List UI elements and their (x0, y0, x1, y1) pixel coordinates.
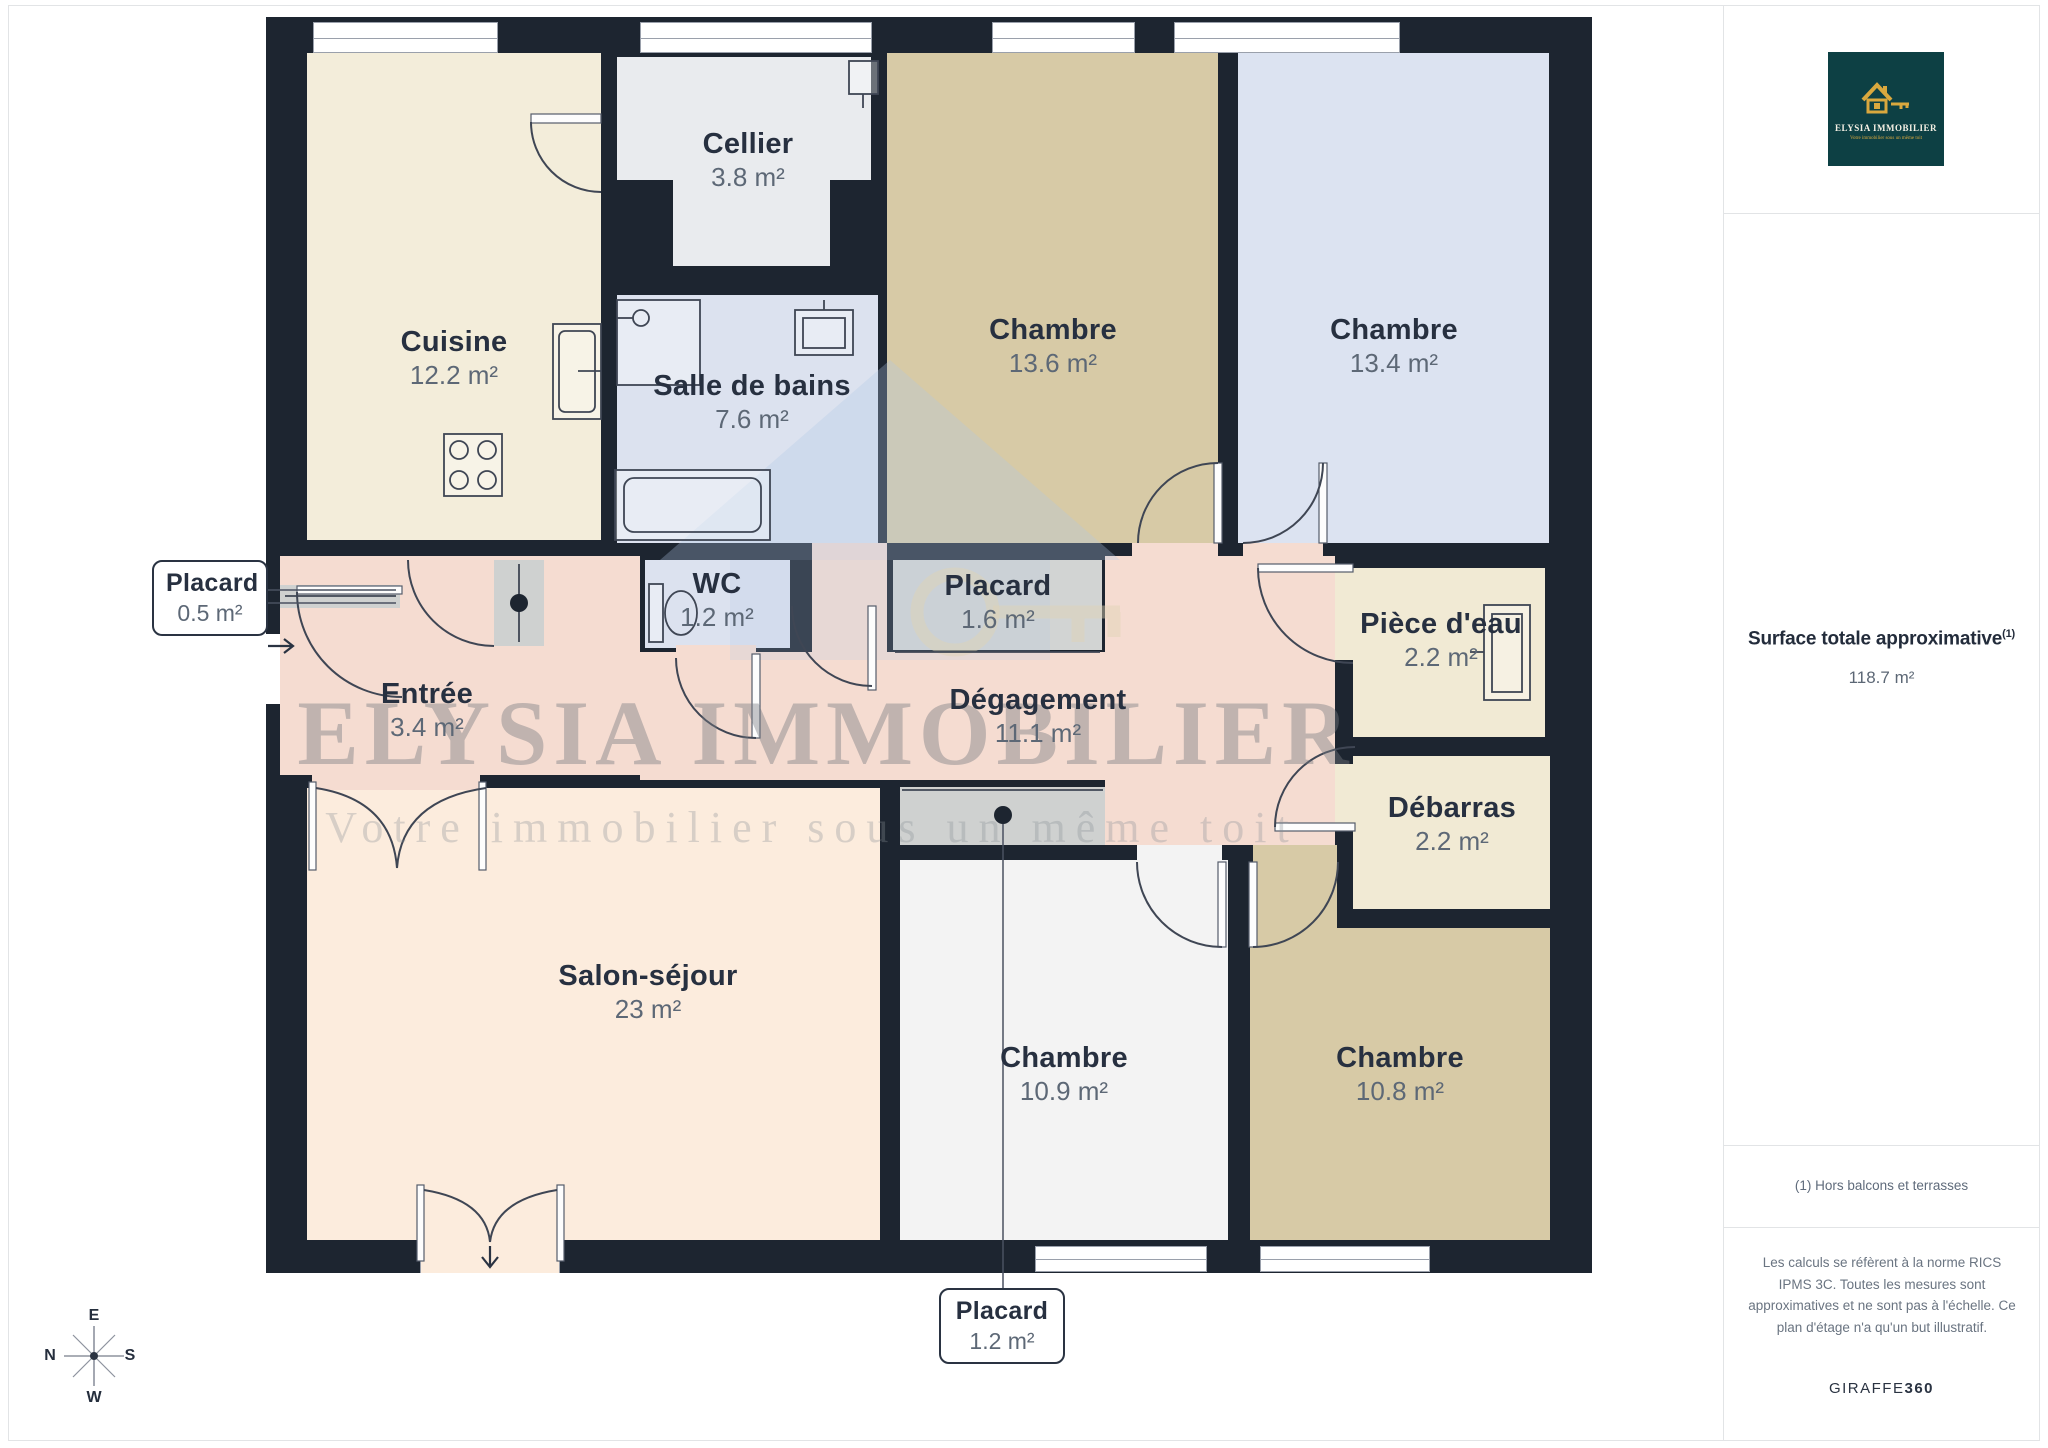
room-label-salle-de-bains: Salle de bains 7.6 m² (653, 370, 851, 435)
room-label-piece-d-eau: Pièce d'eau 2.2 m² (1360, 608, 1522, 673)
bathroom-sink-fixture (795, 300, 853, 355)
room-area: 12.2 m² (401, 359, 508, 391)
room-name: Cellier (703, 128, 794, 161)
room-name: Chambre (1336, 1042, 1464, 1075)
room-name: Chambre (989, 314, 1117, 347)
room-area: 11.1 m² (949, 717, 1126, 749)
callout-placard-bas: Placard 1.2 m² (939, 1288, 1065, 1364)
room-name: Salle de bains (653, 370, 851, 403)
room-area: 3.4 m² (381, 711, 473, 743)
room-name: WC (680, 568, 754, 601)
room-label-chambre-1: Chambre 13.6 m² (989, 314, 1117, 379)
room-name: Chambre (1000, 1042, 1128, 1075)
entry-arrow-icon (268, 639, 293, 653)
room-area: 2.2 m² (1360, 641, 1522, 673)
room-name: Pièce d'eau (1360, 608, 1522, 641)
room-label-chambre-2: Chambre 13.4 m² (1330, 314, 1458, 379)
kitchen-sink-fixture (553, 324, 601, 419)
room-label-degagement: Dégagement 11.1 m² (949, 684, 1126, 749)
room-label-wc: WC 1.2 m² (680, 568, 754, 633)
room-area: 10.8 m² (1336, 1075, 1464, 1107)
stove-fixture (444, 434, 502, 496)
room-area: 1.2 m² (680, 601, 754, 633)
room-area: 3.8 m² (703, 161, 794, 193)
callout-placard-entree: Placard 0.5 m² (152, 560, 268, 636)
balcony-arrow-icon (482, 1246, 498, 1267)
closet-door-dot (994, 806, 1012, 824)
room-label-placard-haut: Placard 1.6 m² (945, 570, 1052, 635)
compass-bottom-label: W (86, 1389, 101, 1407)
room-area: 2.2 m² (1388, 825, 1516, 857)
callout-name: Placard (953, 1296, 1051, 1327)
room-area: 7.6 m² (653, 403, 851, 435)
compass-left-label: N (44, 1347, 56, 1365)
room-label-salon-sejour: Salon-séjour 23 m² (558, 960, 737, 1025)
room-label-debarras: Débarras 2.2 m² (1388, 792, 1516, 857)
compass-right-label: S (125, 1347, 136, 1365)
room-name: Dégagement (949, 684, 1126, 717)
callout-area: 0.5 m² (166, 599, 254, 628)
floor-plan-page: ELYSIA IMMOBILIER Votre immobilier sous … (0, 0, 2048, 1448)
bathtub-fixture (615, 470, 770, 540)
room-name: Débarras (1388, 792, 1516, 825)
room-name: Cuisine (401, 326, 508, 359)
room-name: Chambre (1330, 314, 1458, 347)
room-area: 10.9 m² (1000, 1075, 1128, 1107)
room-area: 23 m² (558, 993, 737, 1025)
cellier-fixture (849, 61, 878, 108)
room-label-entree: Entrée 3.4 m² (381, 678, 473, 743)
room-name: Entrée (381, 678, 473, 711)
room-area: 1.6 m² (945, 603, 1052, 635)
compass-icon (64, 1326, 124, 1386)
room-name: Placard (945, 570, 1052, 603)
callout-area: 1.2 m² (953, 1327, 1051, 1356)
closet-door-dot (510, 594, 528, 612)
compass-top-label: E (89, 1307, 100, 1325)
room-name: Salon-séjour (558, 960, 737, 993)
room-label-cuisine: Cuisine 12.2 m² (401, 326, 508, 391)
room-label-chambre-4: Chambre 10.8 m² (1336, 1042, 1464, 1107)
room-area: 13.6 m² (989, 347, 1117, 379)
room-area: 13.4 m² (1330, 347, 1458, 379)
room-label-cellier: Cellier 3.8 m² (703, 128, 794, 193)
callout-name: Placard (166, 568, 254, 599)
room-label-chambre-3: Chambre 10.9 m² (1000, 1042, 1128, 1107)
